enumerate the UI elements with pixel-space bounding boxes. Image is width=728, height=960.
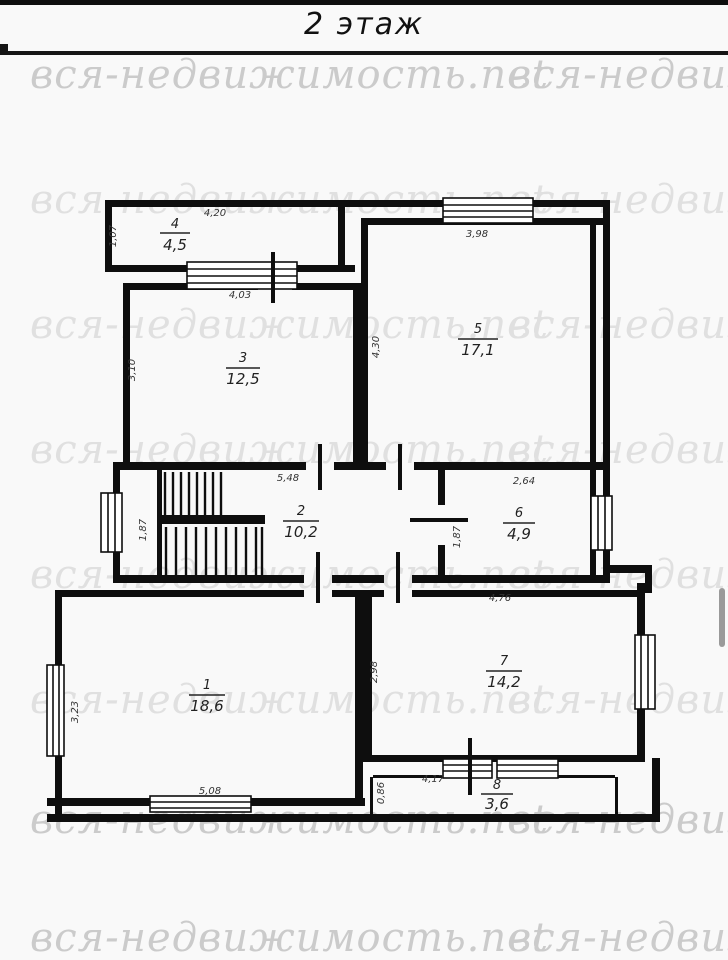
- room-1-label: 1 18,6: [189, 678, 225, 715]
- svg-text:2: 2: [297, 504, 305, 519]
- svg-text:2,64: 2,64: [513, 476, 535, 487]
- svg-text:14,2: 14,2: [487, 673, 520, 691]
- svg-text:6: 6: [515, 506, 523, 521]
- svg-text:5,08: 5,08: [199, 786, 221, 797]
- floor-plan-canvas: 1 18,6 2 10,2 3 12,5 4 4,5 5 17,1 6 4,9: [0, 0, 728, 960]
- svg-text:1,07: 1,07: [108, 224, 119, 247]
- room-5-label: 5 17,1: [458, 322, 498, 359]
- room-4-label: 4 4,5: [160, 217, 190, 254]
- svg-text:4: 4: [171, 217, 179, 232]
- svg-text:18,6: 18,6: [190, 697, 223, 715]
- window-room7-right: [635, 635, 655, 709]
- scrollbar-thumb[interactable]: [719, 588, 725, 647]
- svg-text:4,30: 4,30: [371, 336, 382, 358]
- page-title: 2 этаж: [0, 7, 728, 42]
- window-room7-room8-right: [497, 759, 558, 778]
- floor-plan-page: вся-недвижимость.netвся-недвижимость.net…: [0, 0, 728, 960]
- svg-text:3,6: 3,6: [485, 795, 509, 813]
- top-border-line: [0, 0, 728, 5]
- svg-text:1: 1: [203, 678, 211, 693]
- svg-text:1,87: 1,87: [452, 525, 463, 548]
- svg-text:4,03: 4,03: [229, 290, 251, 301]
- svg-text:17,1: 17,1: [461, 341, 494, 359]
- title-divider-line: [0, 51, 728, 55]
- room-7-label: 7 14,2: [486, 654, 522, 691]
- svg-text:4,20: 4,20: [204, 208, 226, 219]
- svg-text:4,17: 4,17: [422, 774, 445, 785]
- window-room4-room3: [187, 262, 297, 289]
- room-6-label: 6 4,9: [503, 506, 535, 543]
- left-edge-mark: [0, 44, 8, 52]
- svg-text:2,98: 2,98: [369, 661, 380, 683]
- svg-text:3,98: 3,98: [466, 229, 488, 240]
- window-room1-left: [47, 665, 64, 756]
- room-3-label: 3 12,5: [226, 351, 260, 388]
- walls: [47, 200, 660, 822]
- svg-text:5,48: 5,48: [277, 473, 299, 484]
- window-room5-top: [443, 198, 533, 223]
- room-2-label: 2 10,2: [283, 504, 319, 541]
- svg-text:4,76: 4,76: [489, 593, 511, 604]
- window-room1-bottom: [150, 796, 251, 812]
- staircase: [157, 470, 265, 577]
- svg-text:3,10: 3,10: [127, 359, 138, 381]
- svg-text:8: 8: [493, 778, 501, 793]
- svg-text:0,86: 0,86: [376, 782, 387, 804]
- svg-text:3,23: 3,23: [70, 701, 81, 723]
- svg-text:7: 7: [500, 654, 509, 669]
- window-hall-left: [101, 493, 122, 552]
- svg-text:10,2: 10,2: [284, 523, 317, 541]
- window-room7-room8-left: [443, 759, 492, 778]
- svg-text:12,5: 12,5: [226, 370, 259, 388]
- svg-text:1,87: 1,87: [138, 518, 149, 541]
- svg-text:4,5: 4,5: [163, 236, 187, 254]
- svg-text:3: 3: [239, 351, 247, 366]
- svg-text:5: 5: [474, 322, 482, 337]
- svg-text:4,9: 4,9: [507, 525, 531, 543]
- room-8-label: 8 3,6: [481, 778, 513, 813]
- window-room6-right: [591, 496, 612, 550]
